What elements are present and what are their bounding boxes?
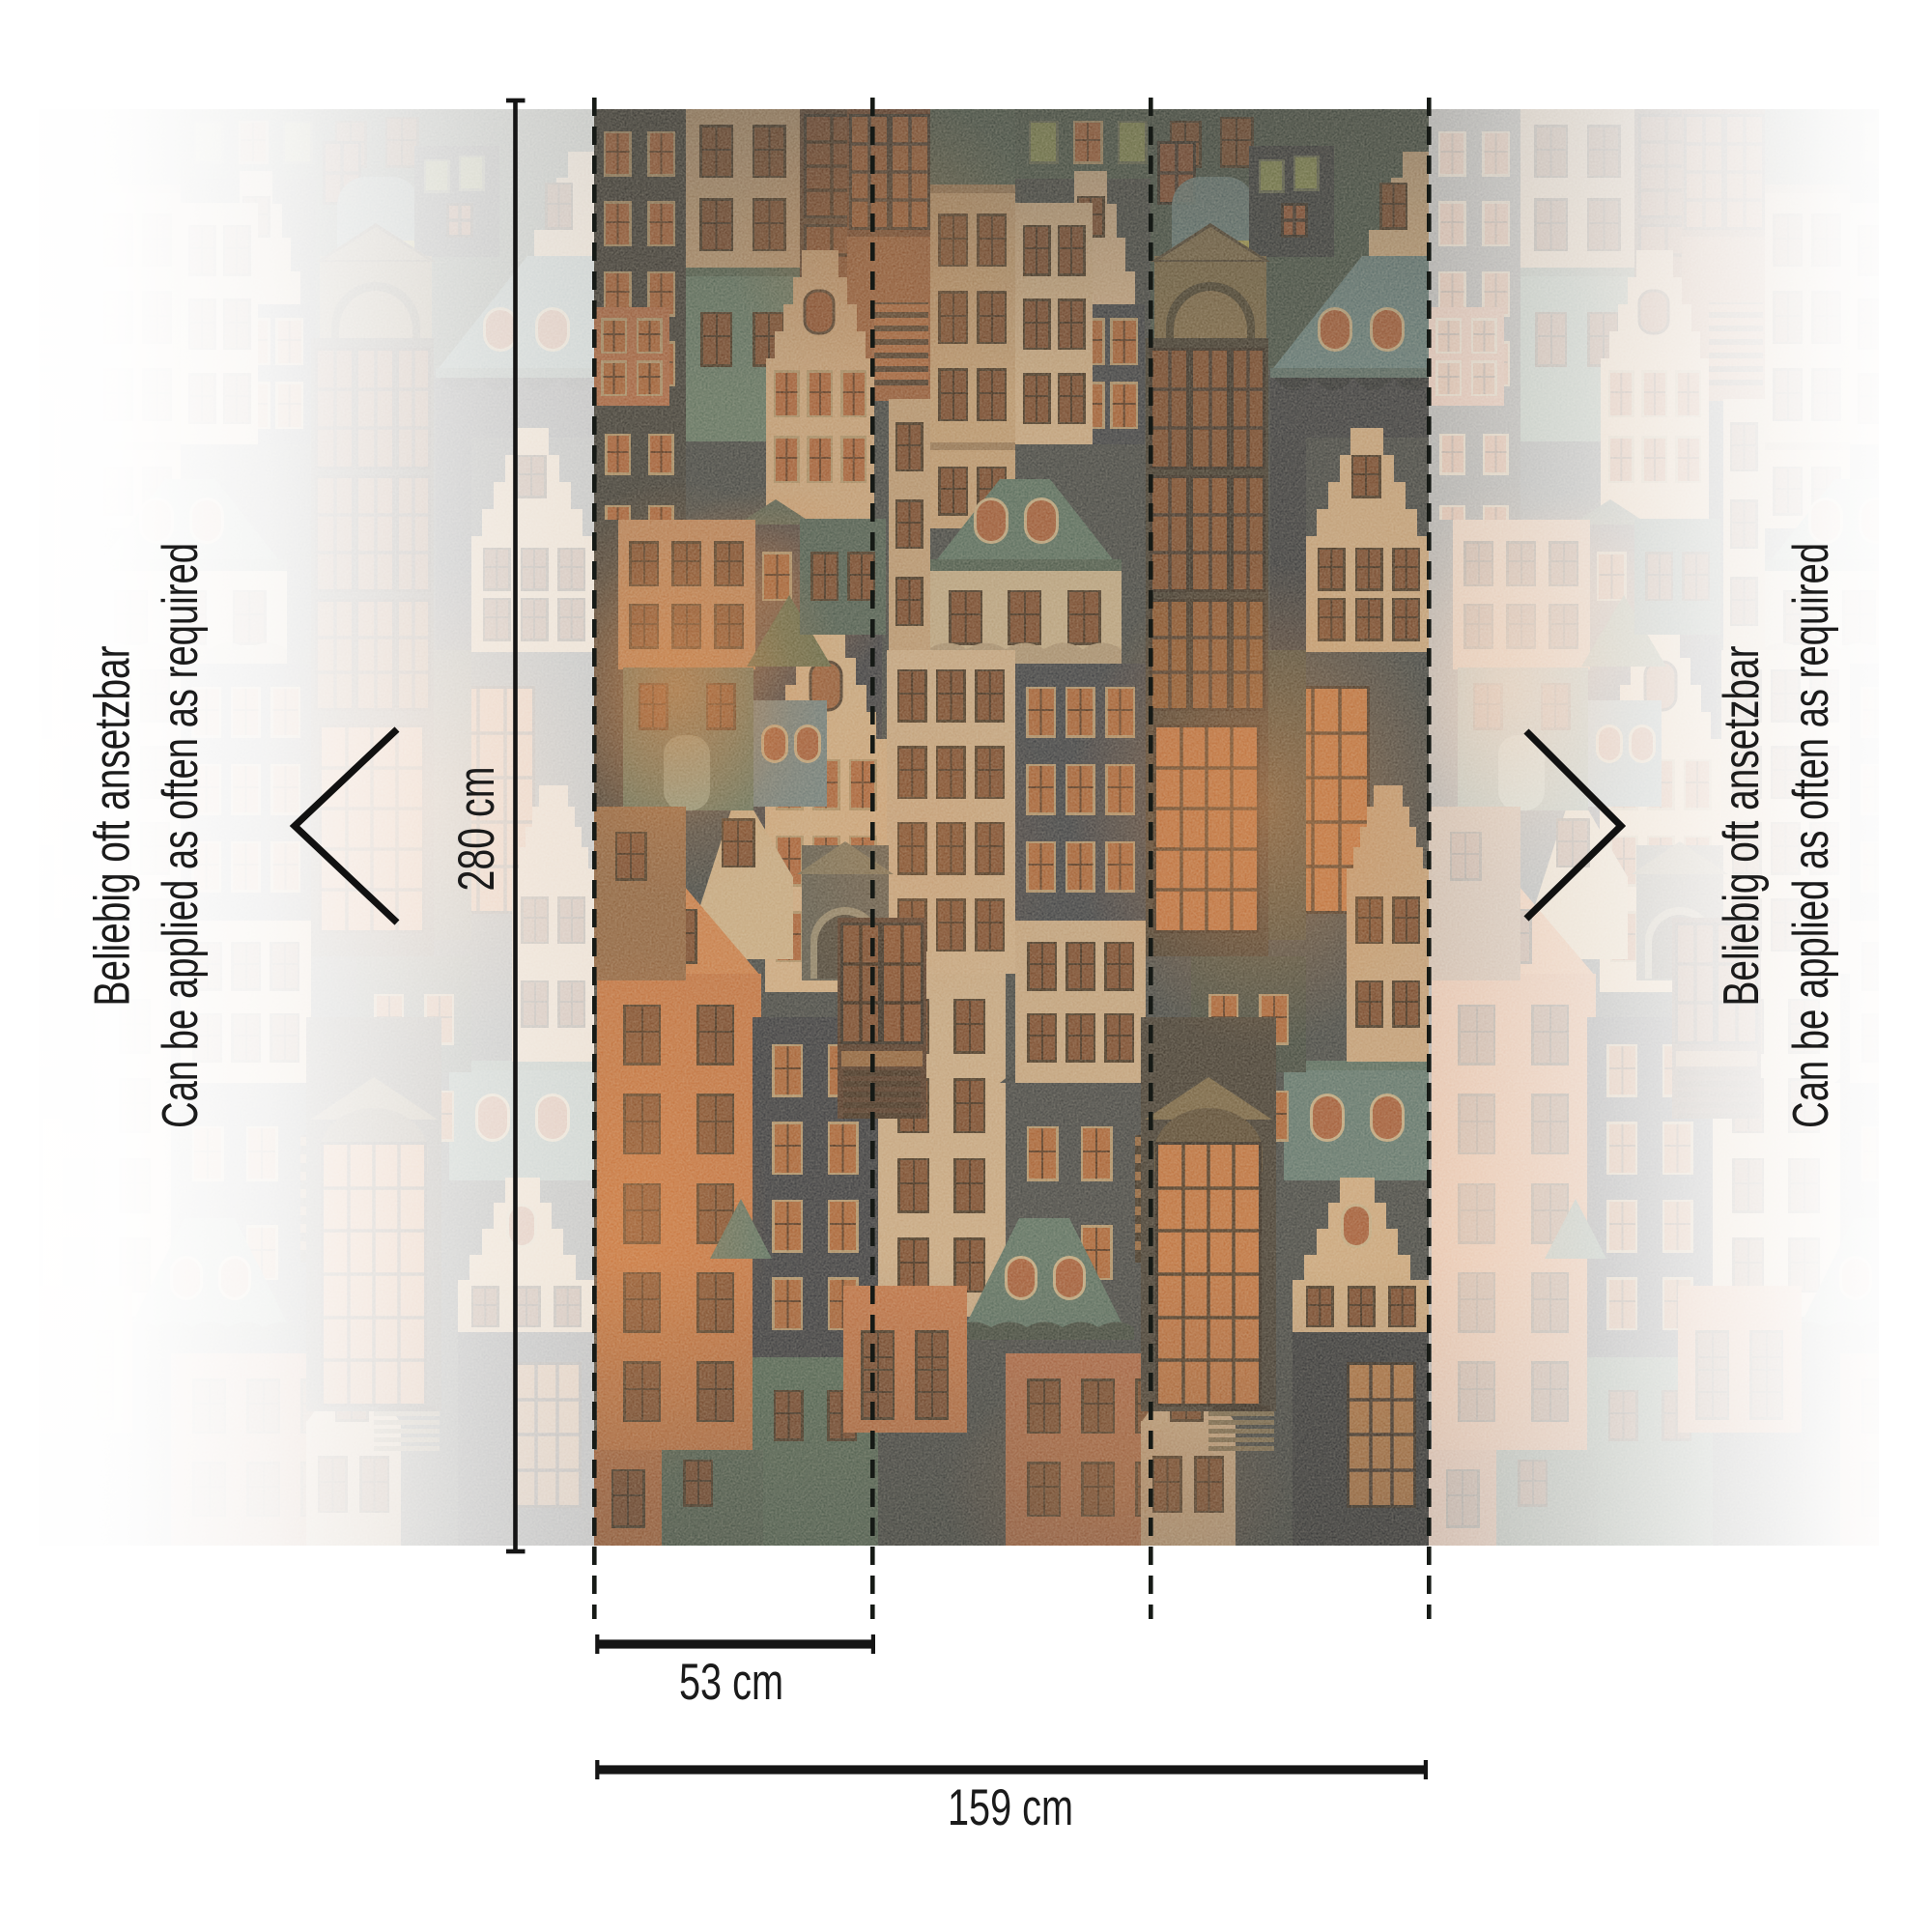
svg-text:53 cm: 53 cm [679, 1654, 783, 1711]
svg-text:159 cm: 159 cm [948, 1779, 1073, 1836]
svg-text:Beliebig oft ansetzbar: Beliebig oft ansetzbar [1714, 646, 1770, 1007]
svg-text:Can be applied as often as req: Can be applied as often as required [1783, 543, 1839, 1128]
svg-text:280 cm: 280 cm [448, 767, 505, 892]
svg-text:Beliebig oft ansetzbar: Beliebig oft ansetzbar [85, 646, 141, 1007]
svg-text:Can be applied as often as req: Can be applied as often as required [153, 543, 209, 1128]
